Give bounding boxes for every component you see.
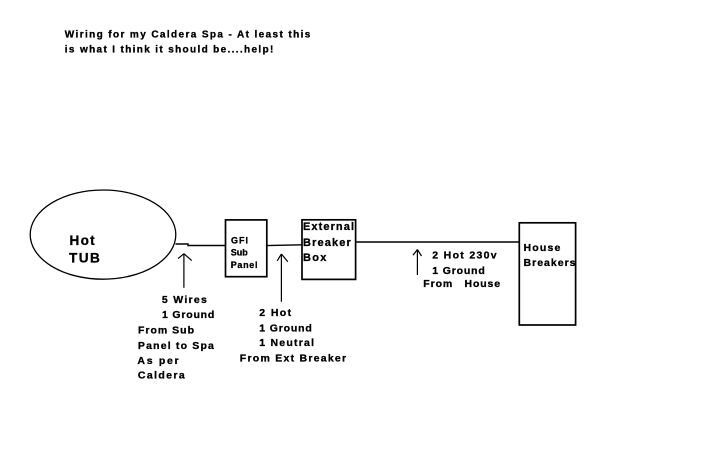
svg-text:is what I think it should be..: is what I think it should be....help! xyxy=(65,45,273,56)
svg-text:Hot: Hot xyxy=(70,233,96,248)
svg-text:As per: As per xyxy=(137,355,178,367)
svg-text:External: External xyxy=(303,221,354,233)
svg-text:1 Ground: 1 Ground xyxy=(432,265,485,277)
svg-text:Panel: Panel xyxy=(231,260,258,270)
svg-text:Breaker: Breaker xyxy=(303,237,352,249)
svg-text:From House: From House xyxy=(423,278,500,290)
svg-text:2 Hot: 2 Hot xyxy=(259,307,291,319)
svg-text:2 Hot 230v: 2 Hot 230v xyxy=(432,250,496,262)
svg-text:Sub: Sub xyxy=(231,248,249,258)
svg-text:House: House xyxy=(524,242,561,254)
svg-text:1 Ground: 1 Ground xyxy=(162,309,214,321)
svg-text:TUB: TUB xyxy=(69,251,100,266)
svg-text:Breakers: Breakers xyxy=(524,257,576,269)
svg-text:1 Ground: 1 Ground xyxy=(259,322,312,334)
svg-text:Wiring for my Caldera Spa - At: Wiring for my Caldera Spa - At least thi… xyxy=(65,30,311,41)
svg-text:1 Neutral: 1 Neutral xyxy=(259,337,314,349)
svg-text:5 Wires: 5 Wires xyxy=(162,294,207,306)
svg-text:GFI: GFI xyxy=(231,236,248,246)
svg-text:From Sub: From Sub xyxy=(138,324,194,336)
svg-text:From Ext Breaker: From Ext Breaker xyxy=(240,353,346,365)
svg-text:Panel to Spa: Panel to Spa xyxy=(138,340,214,352)
svg-text:Box: Box xyxy=(303,252,327,264)
